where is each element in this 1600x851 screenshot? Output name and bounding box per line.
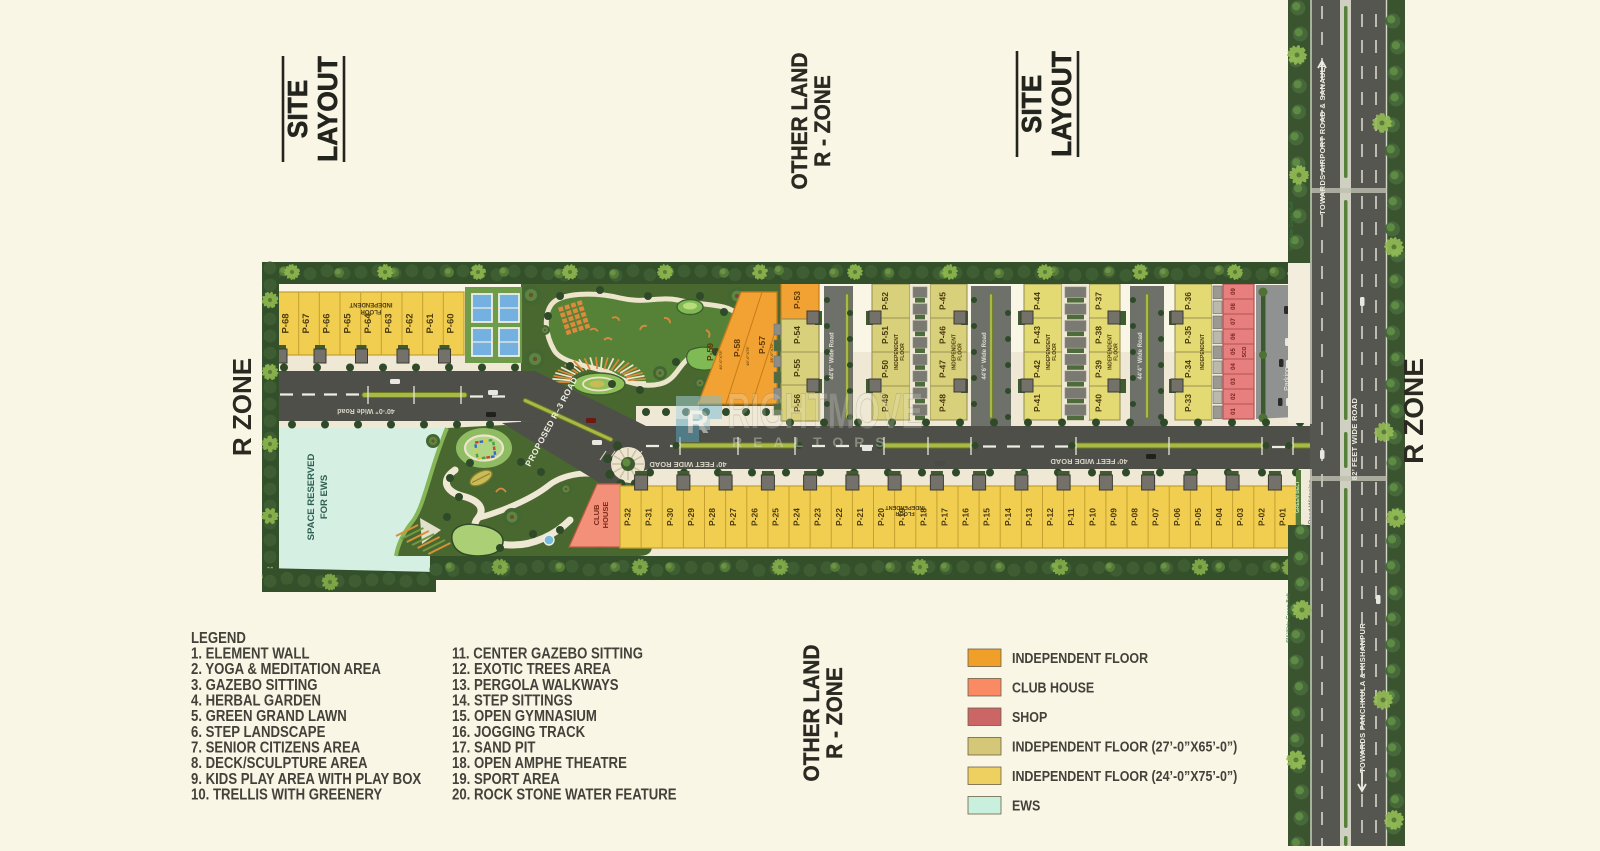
svg-text:40’ FEET WIDE ROAD: 40’ FEET WIDE ROAD	[649, 460, 727, 469]
svg-text:P-30: P-30	[665, 508, 675, 526]
svg-text:P-50: P-50	[880, 360, 890, 378]
svg-text:04: 04	[1231, 363, 1237, 370]
svg-text:P-07: P-07	[1151, 508, 1161, 526]
svg-text:P-12: P-12	[1045, 508, 1055, 526]
svg-text:R: R	[686, 404, 709, 440]
svg-text:P-11: P-11	[1066, 508, 1076, 526]
svg-text:LAYOUT: LAYOUT	[311, 56, 343, 162]
svg-text:6M Wide Green Belt: 6M Wide Green Belt	[1289, 201, 1295, 251]
svg-text:INDEPENDENT: INDEPENDENT	[349, 301, 392, 307]
svg-text:SITE: SITE	[281, 80, 313, 138]
svg-text:12. EXOTIC TREES AREA: 12. EXOTIC TREES AREA	[452, 661, 611, 678]
svg-text:20. ROCK STONE WATER FEATURE: 20. ROCK STONE WATER FEATURE	[452, 787, 677, 804]
svg-text:P-33: P-33	[1183, 394, 1193, 412]
svg-text:P-27: P-27	[728, 508, 738, 526]
svg-text:P-04: P-04	[1214, 508, 1224, 526]
svg-text:FLOOR: FLOOR	[360, 308, 382, 314]
svg-text:19. SPORT AREA: 19. SPORT AREA	[452, 771, 560, 788]
svg-text:P-28: P-28	[707, 508, 717, 526]
svg-text:P-47: P-47	[938, 360, 948, 378]
svg-text:P-39: P-39	[1094, 360, 1104, 378]
svg-text:44’4” Wide Road: 44’4” Wide Road	[1138, 332, 1144, 380]
svg-text:38’-0”X75’: 38’-0”X75’	[769, 343, 774, 362]
svg-text:40’-0” Wide Road: 40’-0” Wide Road	[337, 407, 395, 414]
svg-text:P-48: P-48	[938, 394, 948, 412]
svg-text:P-51: P-51	[880, 326, 890, 344]
svg-text:P-64: P-64	[363, 313, 374, 334]
svg-text:P-06: P-06	[1172, 508, 1182, 526]
svg-text:09: 09	[1231, 288, 1237, 295]
svg-text:SPACE RESERVED: SPACE RESERVED	[306, 453, 317, 540]
svg-text:R ZONE: R ZONE	[1398, 358, 1429, 464]
svg-text:P-20: P-20	[876, 508, 886, 526]
svg-text:INDEPENDENT FLOOR (27’-0”X65’-: INDEPENDENT FLOOR (27’-0”X65’-0”)	[1012, 738, 1237, 754]
svg-text:INDEPENDENT: INDEPENDENT	[1200, 334, 1206, 370]
svg-text:RIGHTMOVE: RIGHTMOVE	[727, 383, 923, 439]
svg-text:OTHER LAND: OTHER LAND	[788, 53, 813, 190]
svg-text:INDEPENDENT FLOOR (24’-0”X75’-: INDEPENDENT FLOOR (24’-0”X75’-0”)	[1012, 768, 1237, 784]
svg-text:P-25: P-25	[770, 508, 780, 526]
svg-text:LAYOUT: LAYOUT	[1045, 51, 1077, 157]
svg-text:SHOP: SHOP	[1012, 709, 1047, 725]
svg-text:P-44: P-44	[1032, 292, 1042, 310]
svg-text:18. OPEN AMPHE THEATRE: 18. OPEN AMPHE THEATRE	[452, 755, 627, 772]
svg-text:P-40: P-40	[1094, 394, 1104, 412]
svg-text:6M Wide Green Belt: 6M Wide Green Belt	[1286, 593, 1292, 643]
svg-text:07: 07	[1231, 318, 1237, 325]
svg-text:P-61: P-61	[425, 313, 436, 334]
svg-text:P-34: P-34	[1183, 360, 1193, 378]
svg-text:GREEN BELT: GREEN BELT	[1295, 481, 1301, 513]
svg-text:P-21: P-21	[855, 508, 865, 526]
svg-text:82’ FEET WIDE ROAD: 82’ FEET WIDE ROAD	[1350, 397, 1359, 480]
svg-text:P-58: P-58	[732, 339, 742, 357]
svg-text:FLOOR: FLOOR	[900, 343, 906, 361]
svg-text:2. YOGA & MEDITATION AREA: 2. YOGA & MEDITATION AREA	[191, 661, 381, 678]
svg-text:P-08: P-08	[1130, 508, 1140, 526]
svg-text:R - ZONE: R - ZONE	[811, 75, 836, 167]
svg-text:P-38: P-38	[1094, 326, 1104, 344]
svg-text:P-52: P-52	[880, 292, 890, 310]
svg-text:OTHER LAND: OTHER LAND	[800, 645, 825, 782]
svg-text:P-66: P-66	[322, 313, 333, 333]
svg-text:3. GAZEBO SITTING: 3. GAZEBO SITTING	[191, 677, 318, 694]
svg-text:P-35: P-35	[1183, 326, 1193, 344]
svg-text:P-54: P-54	[792, 326, 802, 344]
svg-text:INDEPENDENT FLOOR: INDEPENDENT FLOOR	[1012, 650, 1148, 666]
svg-text:EWS: EWS	[1012, 797, 1040, 813]
svg-text:P-43: P-43	[1032, 326, 1042, 344]
svg-text:R - ZONE: R - ZONE	[823, 667, 848, 759]
svg-text:P-03: P-03	[1235, 508, 1245, 526]
svg-text:13. PERGOLA WALKWAYS: 13. PERGOLA WALKWAYS	[452, 677, 619, 694]
svg-text:P-26: P-26	[749, 508, 759, 526]
svg-text:01: 01	[1231, 408, 1237, 415]
svg-text:9. KIDS PLAY AREA WITH PLAY BO: 9. KIDS PLAY AREA WITH PLAY BOX	[191, 771, 422, 788]
svg-text:FOR EWS: FOR EWS	[319, 475, 330, 519]
svg-text:P-55: P-55	[792, 359, 802, 377]
svg-text:P-42: P-42	[1032, 360, 1042, 378]
svg-text:40’ FEET WIDE ROAD: 40’ FEET WIDE ROAD	[1050, 457, 1128, 466]
svg-text:P-29: P-29	[686, 508, 696, 526]
svg-text:P-59: P-59	[705, 343, 715, 361]
svg-text:44’6” Wide Road: 44’6” Wide Road	[830, 332, 836, 380]
svg-text:P-63: P-63	[384, 313, 395, 333]
svg-text:P-53: P-53	[792, 291, 802, 309]
svg-text:10. TRELLIS WITH GREENERY: 10. TRELLIS WITH GREENERY	[191, 787, 383, 804]
svg-text:P-23: P-23	[813, 508, 823, 526]
svg-text:05: 05	[1231, 348, 1237, 355]
svg-text:P-46: P-46	[938, 326, 948, 344]
svg-text:P-22: P-22	[834, 508, 844, 526]
svg-text:P-41: P-41	[1032, 394, 1042, 412]
svg-text:P-31: P-31	[644, 508, 654, 526]
svg-text:P-10: P-10	[1087, 508, 1097, 526]
svg-text:SCO: SCO	[1242, 346, 1248, 357]
svg-text:HOUSE: HOUSE	[601, 502, 610, 529]
svg-text:8. DECK/SCULPTURE AREA: 8. DECK/SCULPTURE AREA	[191, 755, 368, 772]
svg-text:SITE: SITE	[1015, 75, 1047, 133]
svg-text:5. GREEN GRAND LAWN: 5. GREEN GRAND LAWN	[191, 708, 347, 725]
svg-text:P-37: P-37	[1094, 292, 1104, 310]
svg-text:P-16: P-16	[961, 508, 971, 526]
svg-text:P-09: P-09	[1108, 508, 1118, 526]
svg-text:P-14: P-14	[1003, 508, 1013, 526]
svg-text:08: 08	[1231, 303, 1237, 310]
svg-text:03: 03	[1231, 378, 1237, 385]
svg-text:CLUB HOUSE: CLUB HOUSE	[1012, 679, 1094, 695]
svg-text:P-36: P-36	[1183, 292, 1193, 310]
svg-text:P-68: P-68	[280, 313, 291, 333]
svg-text:FLOOR: FLOOR	[1052, 343, 1058, 361]
svg-text:06: 06	[1231, 333, 1237, 340]
svg-text:P-60: P-60	[446, 313, 457, 333]
svg-text:P-57: P-57	[757, 336, 767, 354]
svg-text:P-17: P-17	[939, 508, 949, 526]
svg-text:44’6” Wide Road: 44’6” Wide Road	[982, 332, 988, 380]
svg-text:P-24: P-24	[792, 508, 802, 526]
svg-text:40’-0”X75’: 40’-0”X75’	[745, 346, 750, 365]
svg-text:P-45: P-45	[938, 292, 948, 310]
svg-text:02: 02	[1231, 393, 1237, 400]
svg-text:P-15: P-15	[982, 508, 992, 526]
svg-text:P-05: P-05	[1193, 508, 1203, 526]
svg-text:FLOOR: FLOOR	[1114, 343, 1120, 361]
svg-text:TOWARDS PANCHKULA & KISHANPUR: TOWARDS PANCHKULA & KISHANPUR	[1358, 623, 1367, 773]
svg-text:40’-0”X75’: 40’-0”X75’	[718, 350, 723, 369]
svg-text:P-02: P-02	[1256, 508, 1266, 526]
svg-text:CLUB: CLUB	[592, 504, 601, 525]
svg-text:P-13: P-13	[1024, 508, 1034, 526]
svg-text:REALTORS: REALTORS	[732, 434, 896, 450]
svg-text:P-62: P-62	[404, 313, 415, 333]
svg-text:INDEPENDENT: INDEPENDENT	[885, 504, 925, 510]
svg-text:P-01: P-01	[1277, 508, 1287, 526]
svg-text:FLOOR: FLOOR	[895, 510, 914, 516]
svg-text:P-67: P-67	[301, 313, 312, 333]
svg-text:FLOOR: FLOOR	[958, 343, 964, 361]
svg-text:P-65: P-65	[342, 313, 353, 334]
svg-text:R ZONE: R ZONE	[227, 358, 257, 456]
svg-text:TOWARDS AIRPORT ROAD & SANAULI: TOWARDS AIRPORT ROAD & SANAULI	[1318, 65, 1327, 215]
svg-text:P-32: P-32	[623, 508, 633, 526]
svg-text:15. OPEN GYMNASIUM: 15. OPEN GYMNASIUM	[452, 708, 597, 725]
